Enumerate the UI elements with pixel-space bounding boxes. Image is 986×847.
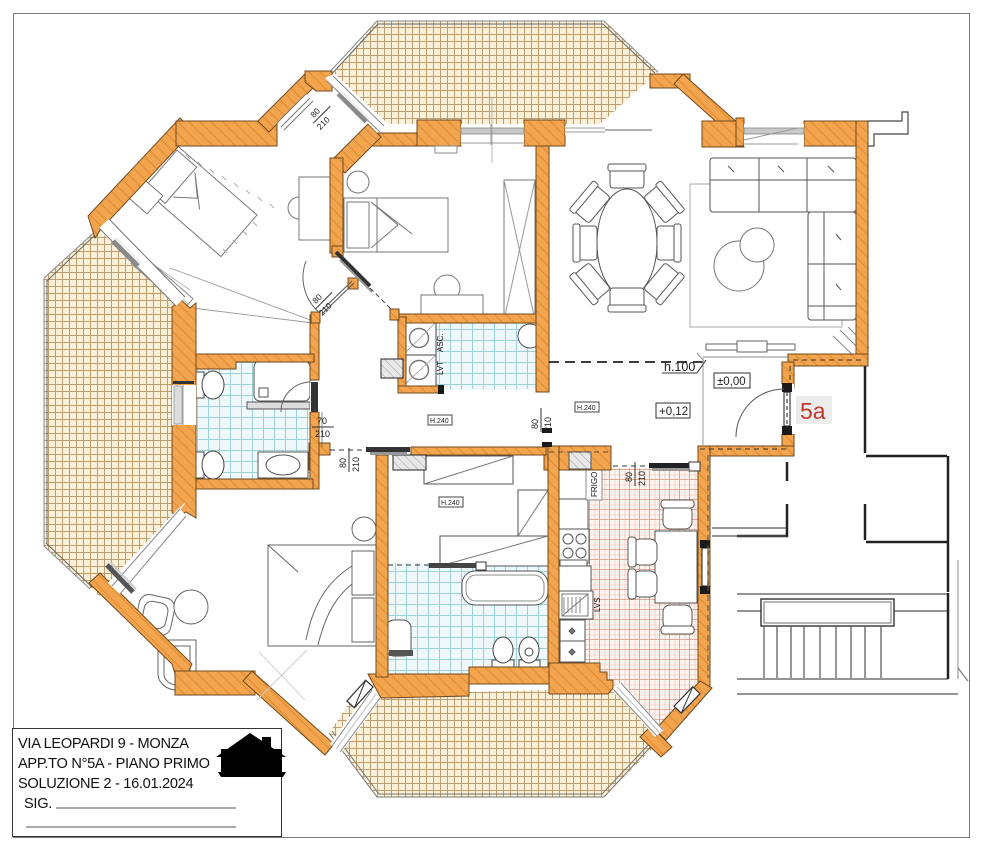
svg-text:FRIGO: FRIGO	[590, 472, 599, 497]
svg-text:h.100: h.100	[664, 360, 695, 374]
svg-text:+0,12: +0,12	[659, 406, 688, 418]
svg-text:5a: 5a	[800, 398, 826, 424]
svg-text:80: 80	[530, 419, 540, 429]
svg-text:APP.TO N°5A - PIANO PRIMO: APP.TO N°5A - PIANO PRIMO	[18, 756, 210, 772]
svg-text:80: 80	[624, 472, 634, 482]
svg-text:210: 210	[351, 457, 361, 472]
svg-text:VIA LEOPARDI 9 - MONZA: VIA LEOPARDI 9 - MONZA	[18, 736, 189, 752]
svg-text:SIG.: SIG.	[24, 796, 52, 812]
svg-text:80: 80	[338, 458, 348, 468]
svg-text:LVS: LVS	[593, 597, 602, 612]
svg-text:H.240: H.240	[430, 418, 449, 425]
svg-text:210: 210	[543, 417, 553, 432]
svg-text:H.240: H.240	[441, 500, 460, 507]
svg-text:±0,00: ±0,00	[717, 376, 746, 388]
svg-text:210: 210	[315, 429, 330, 439]
svg-text:LVT: LVT	[436, 361, 445, 375]
svg-text:210: 210	[637, 471, 647, 486]
svg-text:H.240: H.240	[577, 405, 596, 412]
svg-text:SOLUZIONE 2 - 16.01.2024: SOLUZIONE 2 - 16.01.2024	[18, 776, 193, 792]
svg-text:ASC.: ASC.	[436, 333, 445, 352]
